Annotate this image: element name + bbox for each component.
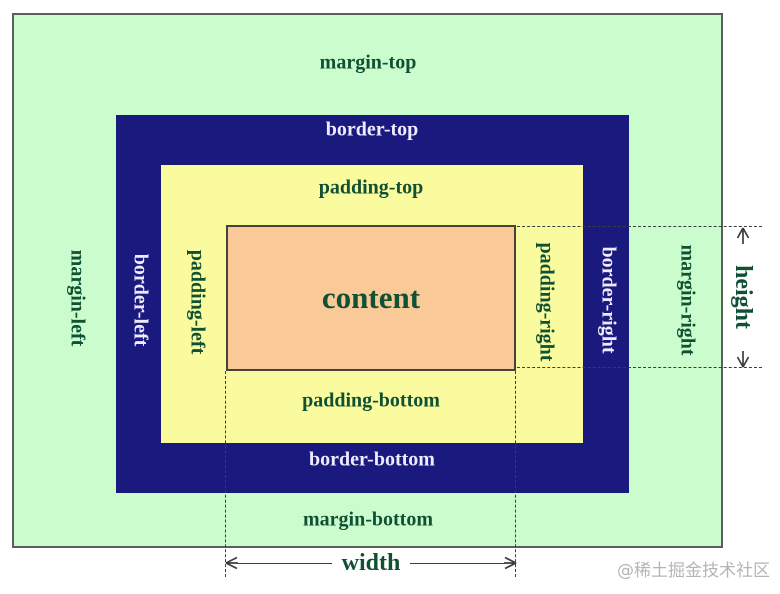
height-label: height [731,265,755,329]
arrow-down-icon [736,351,750,368]
border-top-label: border-top [326,119,419,142]
margin-right-label: margin-right [676,244,699,355]
content-label: content [322,280,420,316]
padding-right-label: padding-right [535,243,558,362]
padding-bottom-label: padding-bottom [302,390,440,413]
padding-top-label: padding-top [319,177,424,200]
border-left-label: border-left [129,254,152,347]
arrow-right-icon [504,556,517,570]
height-measure: height [729,227,757,368]
content-area: content [226,225,516,371]
height-extension-line-bottom [517,367,762,368]
width-label: width [332,551,411,575]
width-extension-line-right [515,371,516,577]
box-model-diagram: content margin-top border-top padding-to… [0,0,780,594]
margin-bottom-label: margin-bottom [303,509,433,532]
margin-left-label: margin-left [66,250,89,347]
margin-top-label: margin-top [320,52,417,75]
watermark: @稀土掘金技术社区 [617,556,770,581]
arrow-left-icon [225,556,238,570]
height-extension-line-top [517,226,762,227]
width-measure: width [225,551,517,575]
arrow-up-icon [736,227,750,244]
width-extension-line-left [225,371,226,577]
padding-left-label: padding-left [186,250,209,354]
border-bottom-label: border-bottom [309,449,435,472]
width-arrow-shaft-right [410,563,504,564]
border-right-label: border-right [597,246,620,353]
width-arrow-shaft-left [238,563,332,564]
